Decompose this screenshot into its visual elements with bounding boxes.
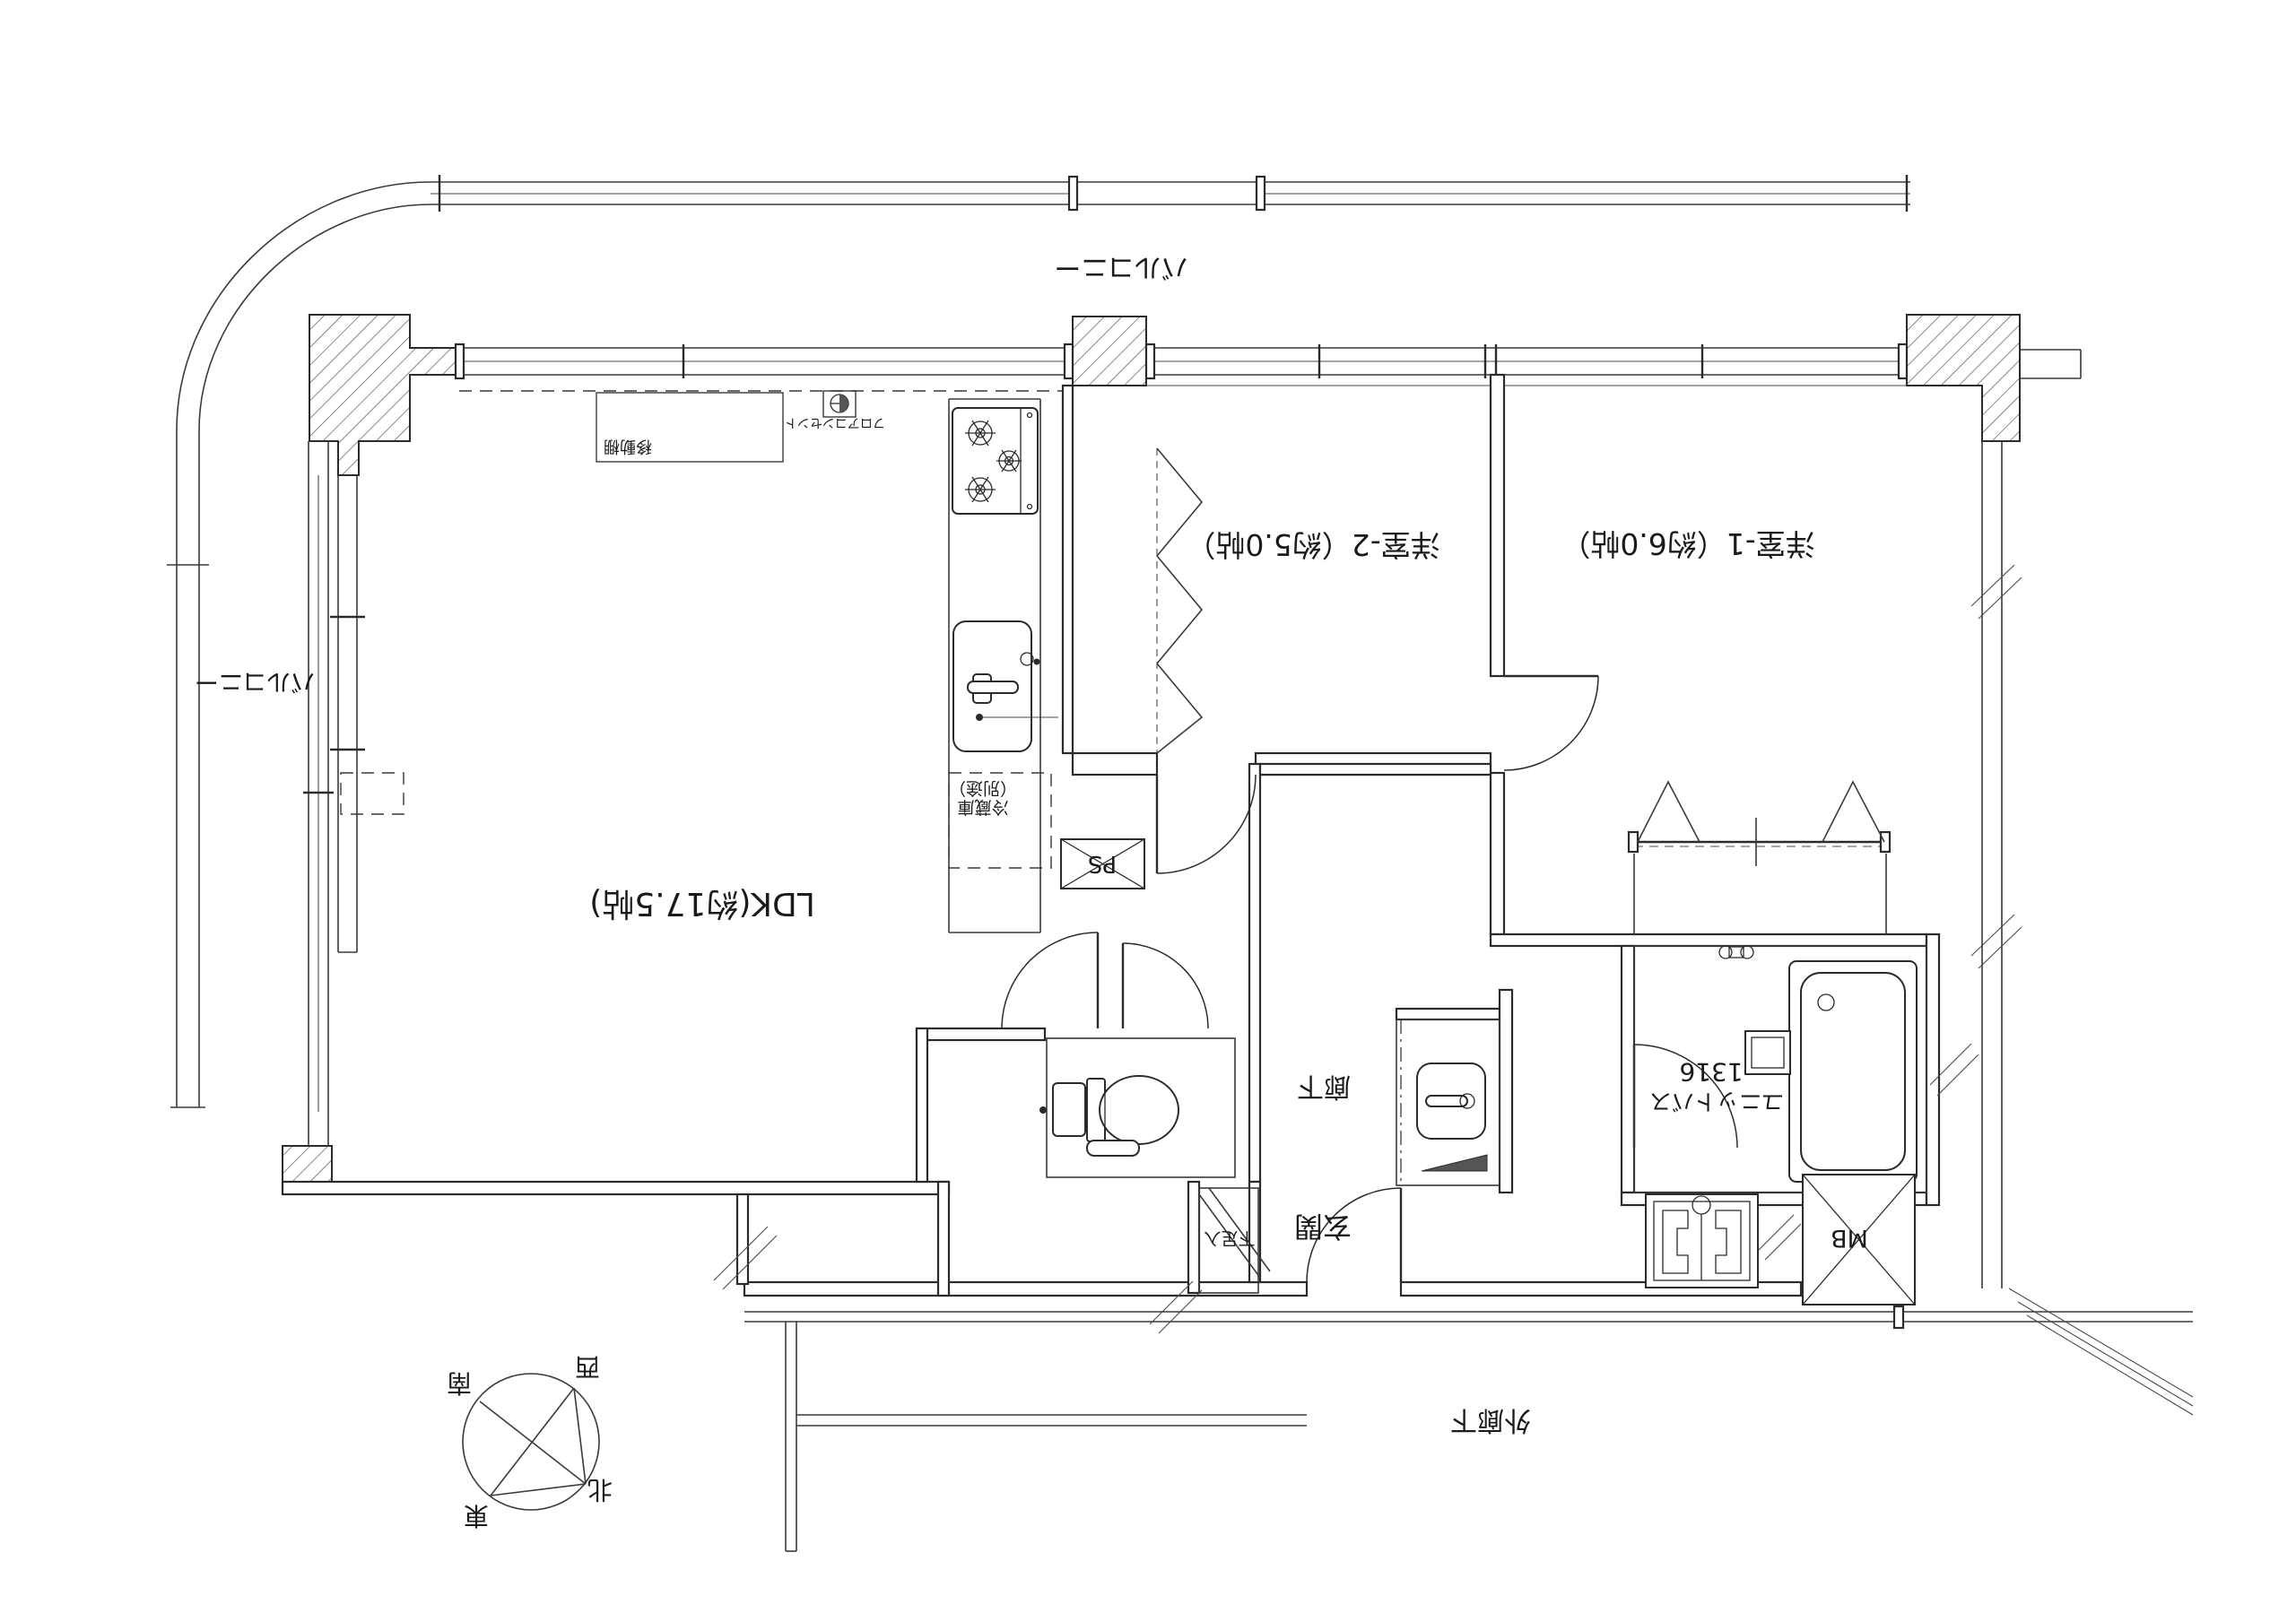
compass-east: 東 [464,1501,489,1531]
floor-outlet: フロアコンセント [785,391,885,429]
bath-faucet [1719,946,1753,958]
meter-box: MB [1803,1175,1915,1305]
ldk-hall-door [1002,932,1098,1028]
hallway-label: 廊下 [1297,1071,1351,1102]
compass-north: 北 [587,1475,613,1505]
moving-shelf: 移動棚 [596,393,783,462]
laundry-pan [1646,1194,1758,1288]
balcony-top-railing [430,175,1910,212]
washbasin [1417,1063,1487,1171]
column-top-middle [1073,317,1146,386]
floor-plan-page: （別途） 冷蔵庫 PS 移動棚 フロアコンセント [0,0,2296,1622]
fridge-label-2: 冷蔵庫 [957,797,1008,817]
bedroom1-door [1504,676,1598,770]
moving-shelf-label: 移動棚 [604,437,652,455]
mb-label: MB [1831,1224,1868,1252]
ps-label: PS [1088,850,1117,877]
pipe-space: PS [1061,839,1144,889]
washroom [1396,1019,1500,1185]
compass-rose: 南 西 東 北 [447,1352,613,1531]
bedroom1-label: 洋室-1（約6.0帖） [1561,526,1814,561]
gas-stove [952,408,1038,514]
wc-room [1039,1038,1235,1177]
bedroom1-closet [1629,782,1890,934]
unit-bath-label-1: 1316 [1679,1057,1743,1087]
floor-plan-drawing: （別途） 冷蔵庫 PS 移動棚 フロアコンセント [0,0,2296,1622]
unit-bath-label-2: ユニットバス [1649,1089,1784,1115]
kitchen-sink [953,621,1058,751]
bedroom2-closet [1157,448,1202,753]
right-outer-wall [1971,441,2022,1288]
balcony-left-label: バルコニー [195,667,315,695]
shoe-cabinet-label: 下足入 [1204,1228,1255,1248]
entrance-label: 玄関 [1294,1210,1352,1244]
compass-south: 南 [447,1368,472,1398]
balcony-left-railing [330,441,404,952]
fridge-label-1: （別途） [949,778,1017,798]
bathtub [1789,961,1917,1182]
ldk-west-window [303,441,334,1146]
bedroom2-label: 洋室-2（約5.0帖） [1186,527,1439,562]
ldk-label: LDK(約17.5帖) [589,885,815,922]
bedroom2-door [1157,775,1256,873]
refrigerator-space: （別途） 冷蔵庫 [949,773,1051,868]
column-top-right [1907,315,2020,441]
balcony-top-label: バルコニー [1054,251,1187,282]
bath-counter [1745,1031,1790,1074]
top-window-band [456,344,1907,391]
unit-bath [1634,946,1926,1193]
toilet [1039,1076,1178,1156]
floor-outlet-label: フロアコンセント [785,415,885,429]
column-top-left [309,315,459,475]
compass-west: 西 [575,1352,600,1382]
outer-corridor-label: 外廊下 [1450,1404,1531,1436]
wc-door [1123,943,1208,1028]
